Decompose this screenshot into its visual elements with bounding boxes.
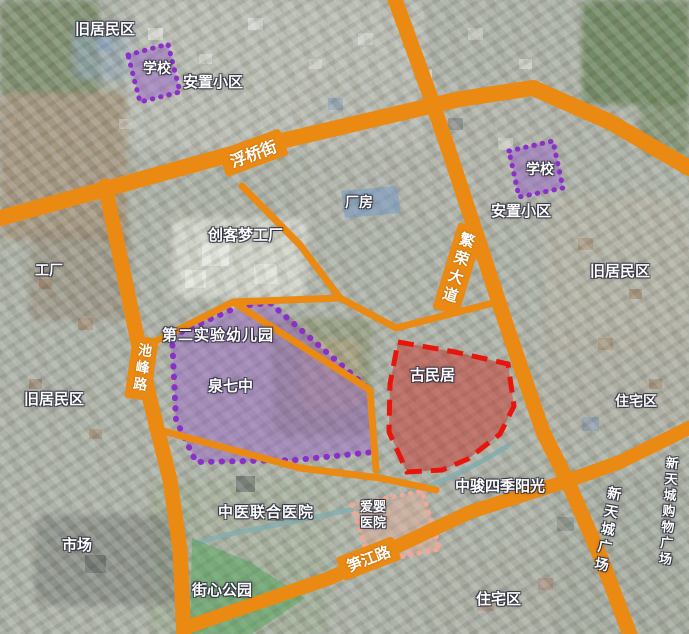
label-residential-right: 住宅区 bbox=[615, 394, 657, 412]
satellite-planning-map: 浮桥街 繁荣大道 池峰路 笋江路 旧居民区 学校 安置小区 厂房 创客梦工厂 学… bbox=[0, 0, 689, 634]
label-old-residential-right: 旧居民区 bbox=[590, 262, 650, 281]
label-factory-building: 厂房 bbox=[345, 195, 373, 213]
label-factory-left: 工厂 bbox=[35, 263, 63, 281]
label-tcm-united-hospital: 中医联合医院 bbox=[218, 503, 314, 522]
label-school-topleft: 学校 bbox=[143, 61, 171, 79]
label-no2-experimental-kindergarten: 第二实验幼儿园 bbox=[162, 326, 274, 345]
major-roads bbox=[0, 0, 689, 634]
label-zhongjun-four-seasons: 中骏四季阳光 bbox=[455, 477, 545, 496]
label-street-center-park: 街心公园 bbox=[192, 581, 252, 600]
label-old-residential-topleft: 旧居民区 bbox=[75, 20, 135, 39]
label-resettlement-topleft: 安置小区 bbox=[183, 73, 243, 92]
map-overlay-svg bbox=[0, 0, 689, 634]
label-old-residential-left: 旧居民区 bbox=[24, 390, 84, 409]
label-market: 市场 bbox=[62, 536, 92, 555]
label-quanzhou-no7-middle-school: 泉七中 bbox=[208, 377, 253, 396]
label-aiying-hospital: 爱婴医院 bbox=[358, 500, 388, 533]
label-school-topright: 学校 bbox=[526, 162, 554, 180]
label-resettlement-right: 安置小区 bbox=[491, 202, 551, 221]
label-maker-dream-factory: 创客梦工厂 bbox=[208, 226, 283, 245]
label-residential-bottom: 住宅区 bbox=[476, 590, 521, 609]
label-ancient-dwellings: 古民居 bbox=[410, 366, 455, 385]
road-chifeng-road bbox=[105, 186, 184, 634]
